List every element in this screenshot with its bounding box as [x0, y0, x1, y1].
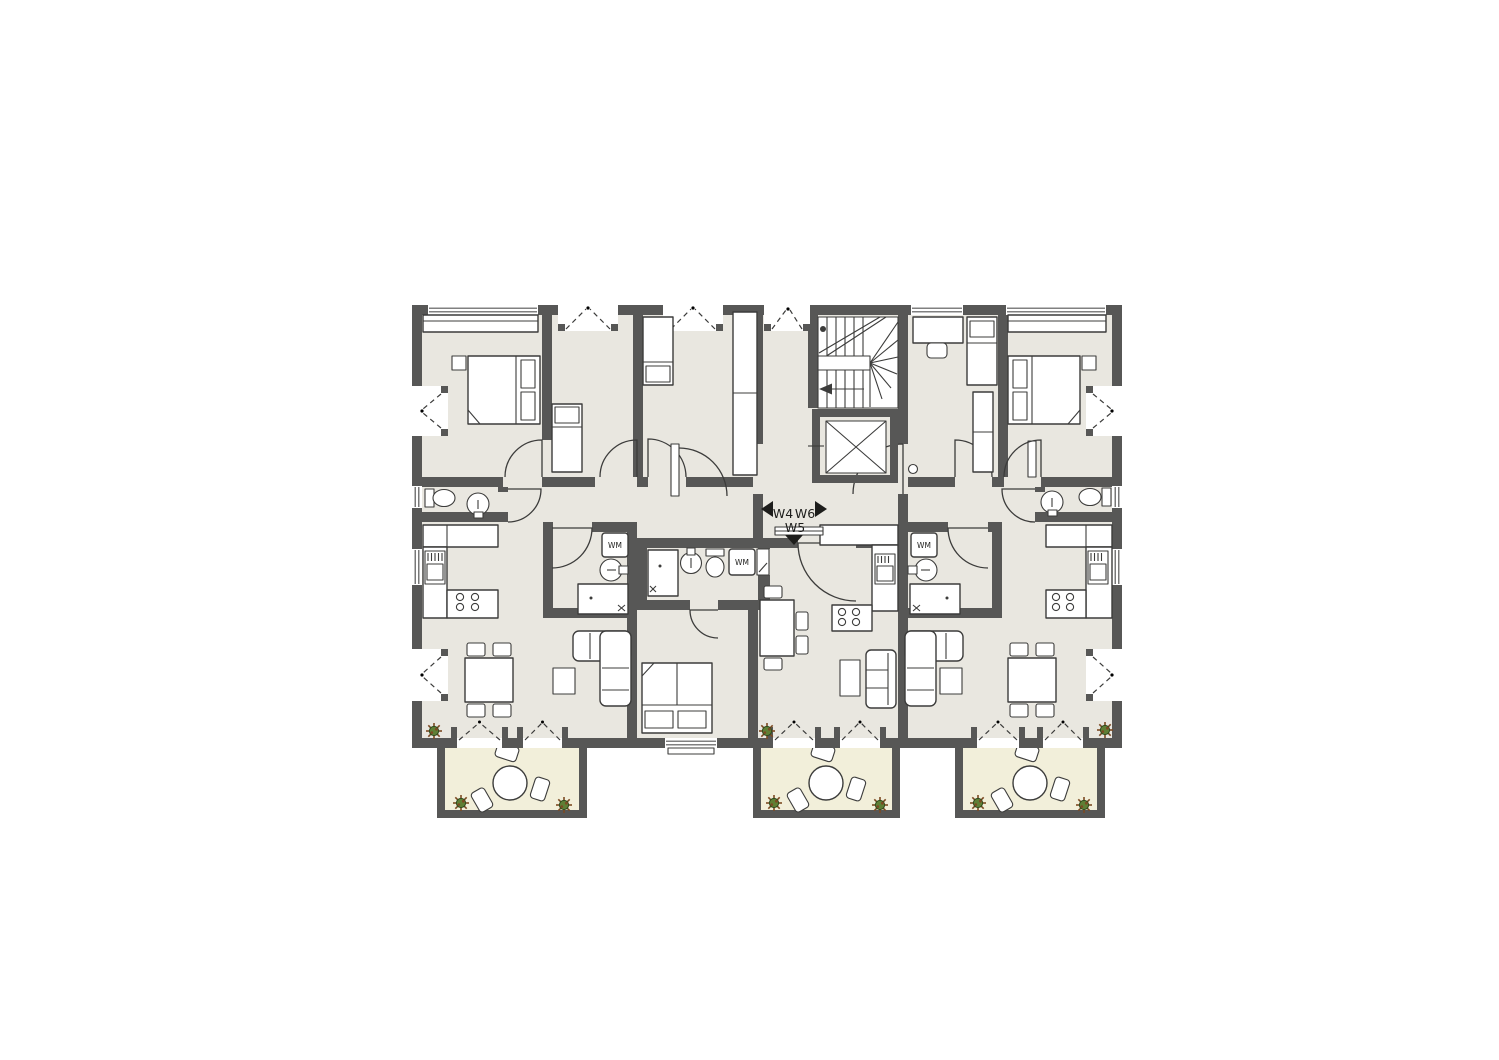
- double-bed-icon: [1008, 356, 1080, 424]
- door-leaf: [757, 549, 769, 575]
- toilet-icon: [425, 489, 455, 507]
- french-window: [412, 649, 448, 701]
- wm-label: WM: [917, 541, 931, 550]
- single-bed-icon: [552, 404, 582, 472]
- single-bed-icon: [643, 317, 673, 385]
- window: [1112, 486, 1122, 508]
- window: [412, 486, 422, 508]
- kitchen-sink-icon: [425, 551, 445, 584]
- wm-label: WM: [608, 541, 622, 550]
- kitchen-sink-icon: [1088, 551, 1108, 584]
- window: [911, 305, 963, 315]
- window: [665, 738, 717, 754]
- stair-start-dot: [820, 326, 826, 332]
- balcony-w4: [437, 741, 587, 818]
- unit-label-w4: W4: [773, 506, 793, 521]
- nightstand: [452, 356, 466, 370]
- balcony-table: [1013, 766, 1047, 800]
- side-table: [553, 668, 575, 694]
- door-leaf: [671, 444, 679, 496]
- wardrobe: [423, 315, 538, 332]
- shower-icon: [910, 584, 960, 614]
- washing-machine: WM: [911, 533, 937, 557]
- shower-icon: [578, 584, 628, 614]
- window: [428, 305, 538, 315]
- stove-icon: [1046, 590, 1086, 618]
- wm-label: WM: [735, 558, 749, 567]
- toilet-icon: [706, 549, 724, 577]
- toilet-icon: [1079, 488, 1111, 506]
- unit-label-w5: W5: [785, 520, 805, 535]
- stove-icon: [832, 605, 872, 631]
- balcony-w5: [753, 741, 900, 818]
- staircase: [818, 317, 898, 408]
- balcony-table: [809, 766, 843, 800]
- shower-icon: [648, 550, 678, 596]
- kitchen-sink-icon: [875, 554, 895, 584]
- wardrobe: [973, 392, 993, 472]
- single-bed-icon: [967, 317, 997, 385]
- washing-machine: WM: [602, 533, 628, 557]
- french-window: [412, 386, 448, 436]
- balcony-w6: [955, 741, 1105, 818]
- sofa: [866, 650, 896, 708]
- wardrobe: [733, 312, 757, 475]
- side-table: [940, 668, 962, 694]
- french-window: [1086, 386, 1122, 436]
- balcony-table: [493, 766, 527, 800]
- door-leaf: [1028, 441, 1036, 477]
- window: [1112, 549, 1122, 585]
- french-window: [764, 303, 810, 331]
- double-bed-icon: [642, 663, 712, 733]
- window: [1006, 305, 1106, 315]
- french-window: [558, 303, 618, 331]
- wardrobe: [1008, 315, 1106, 332]
- washing-machine: WM: [729, 549, 755, 575]
- floor-plan: WM WM WM W4 W6 W5: [0, 0, 1499, 1060]
- double-bed-icon: [468, 356, 540, 424]
- coffee-table: [840, 660, 860, 696]
- floor-plan-page: WM WM WM W4 W6 W5: [0, 0, 1499, 1060]
- french-window: [1086, 649, 1122, 701]
- unit-label-w6: W6: [795, 506, 815, 521]
- nightstand: [1082, 356, 1096, 370]
- stove-icon: [447, 590, 498, 618]
- sensor-dot: [909, 465, 918, 474]
- window: [412, 549, 422, 585]
